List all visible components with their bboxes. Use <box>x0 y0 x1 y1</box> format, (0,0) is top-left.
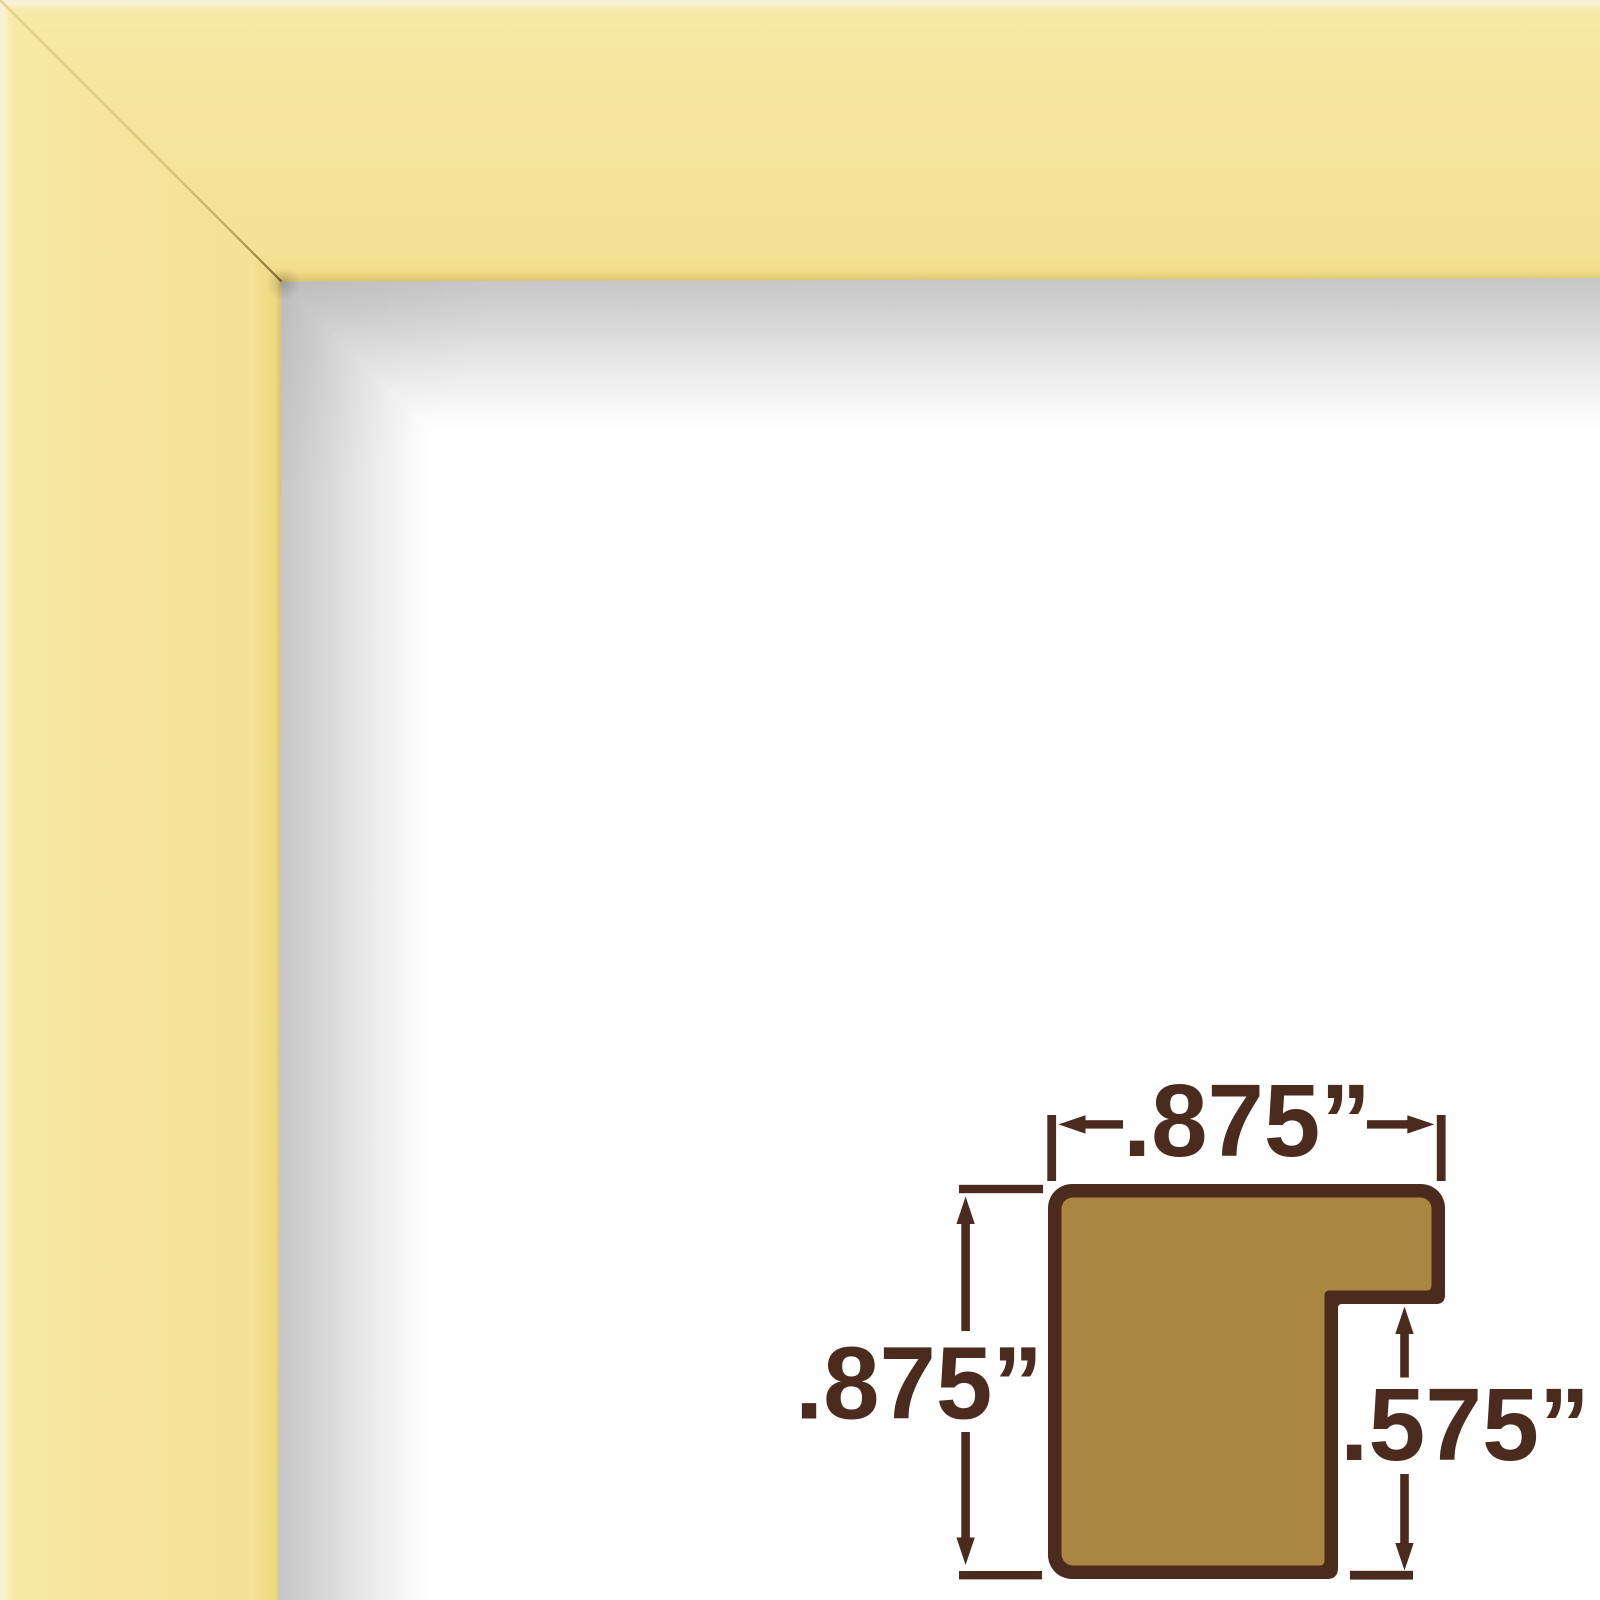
svg-text:.575”: .575” <box>1340 1367 1590 1482</box>
svg-text:.875”: .875” <box>1123 1063 1371 1178</box>
svg-text:.875”: .875” <box>795 1326 1043 1441</box>
